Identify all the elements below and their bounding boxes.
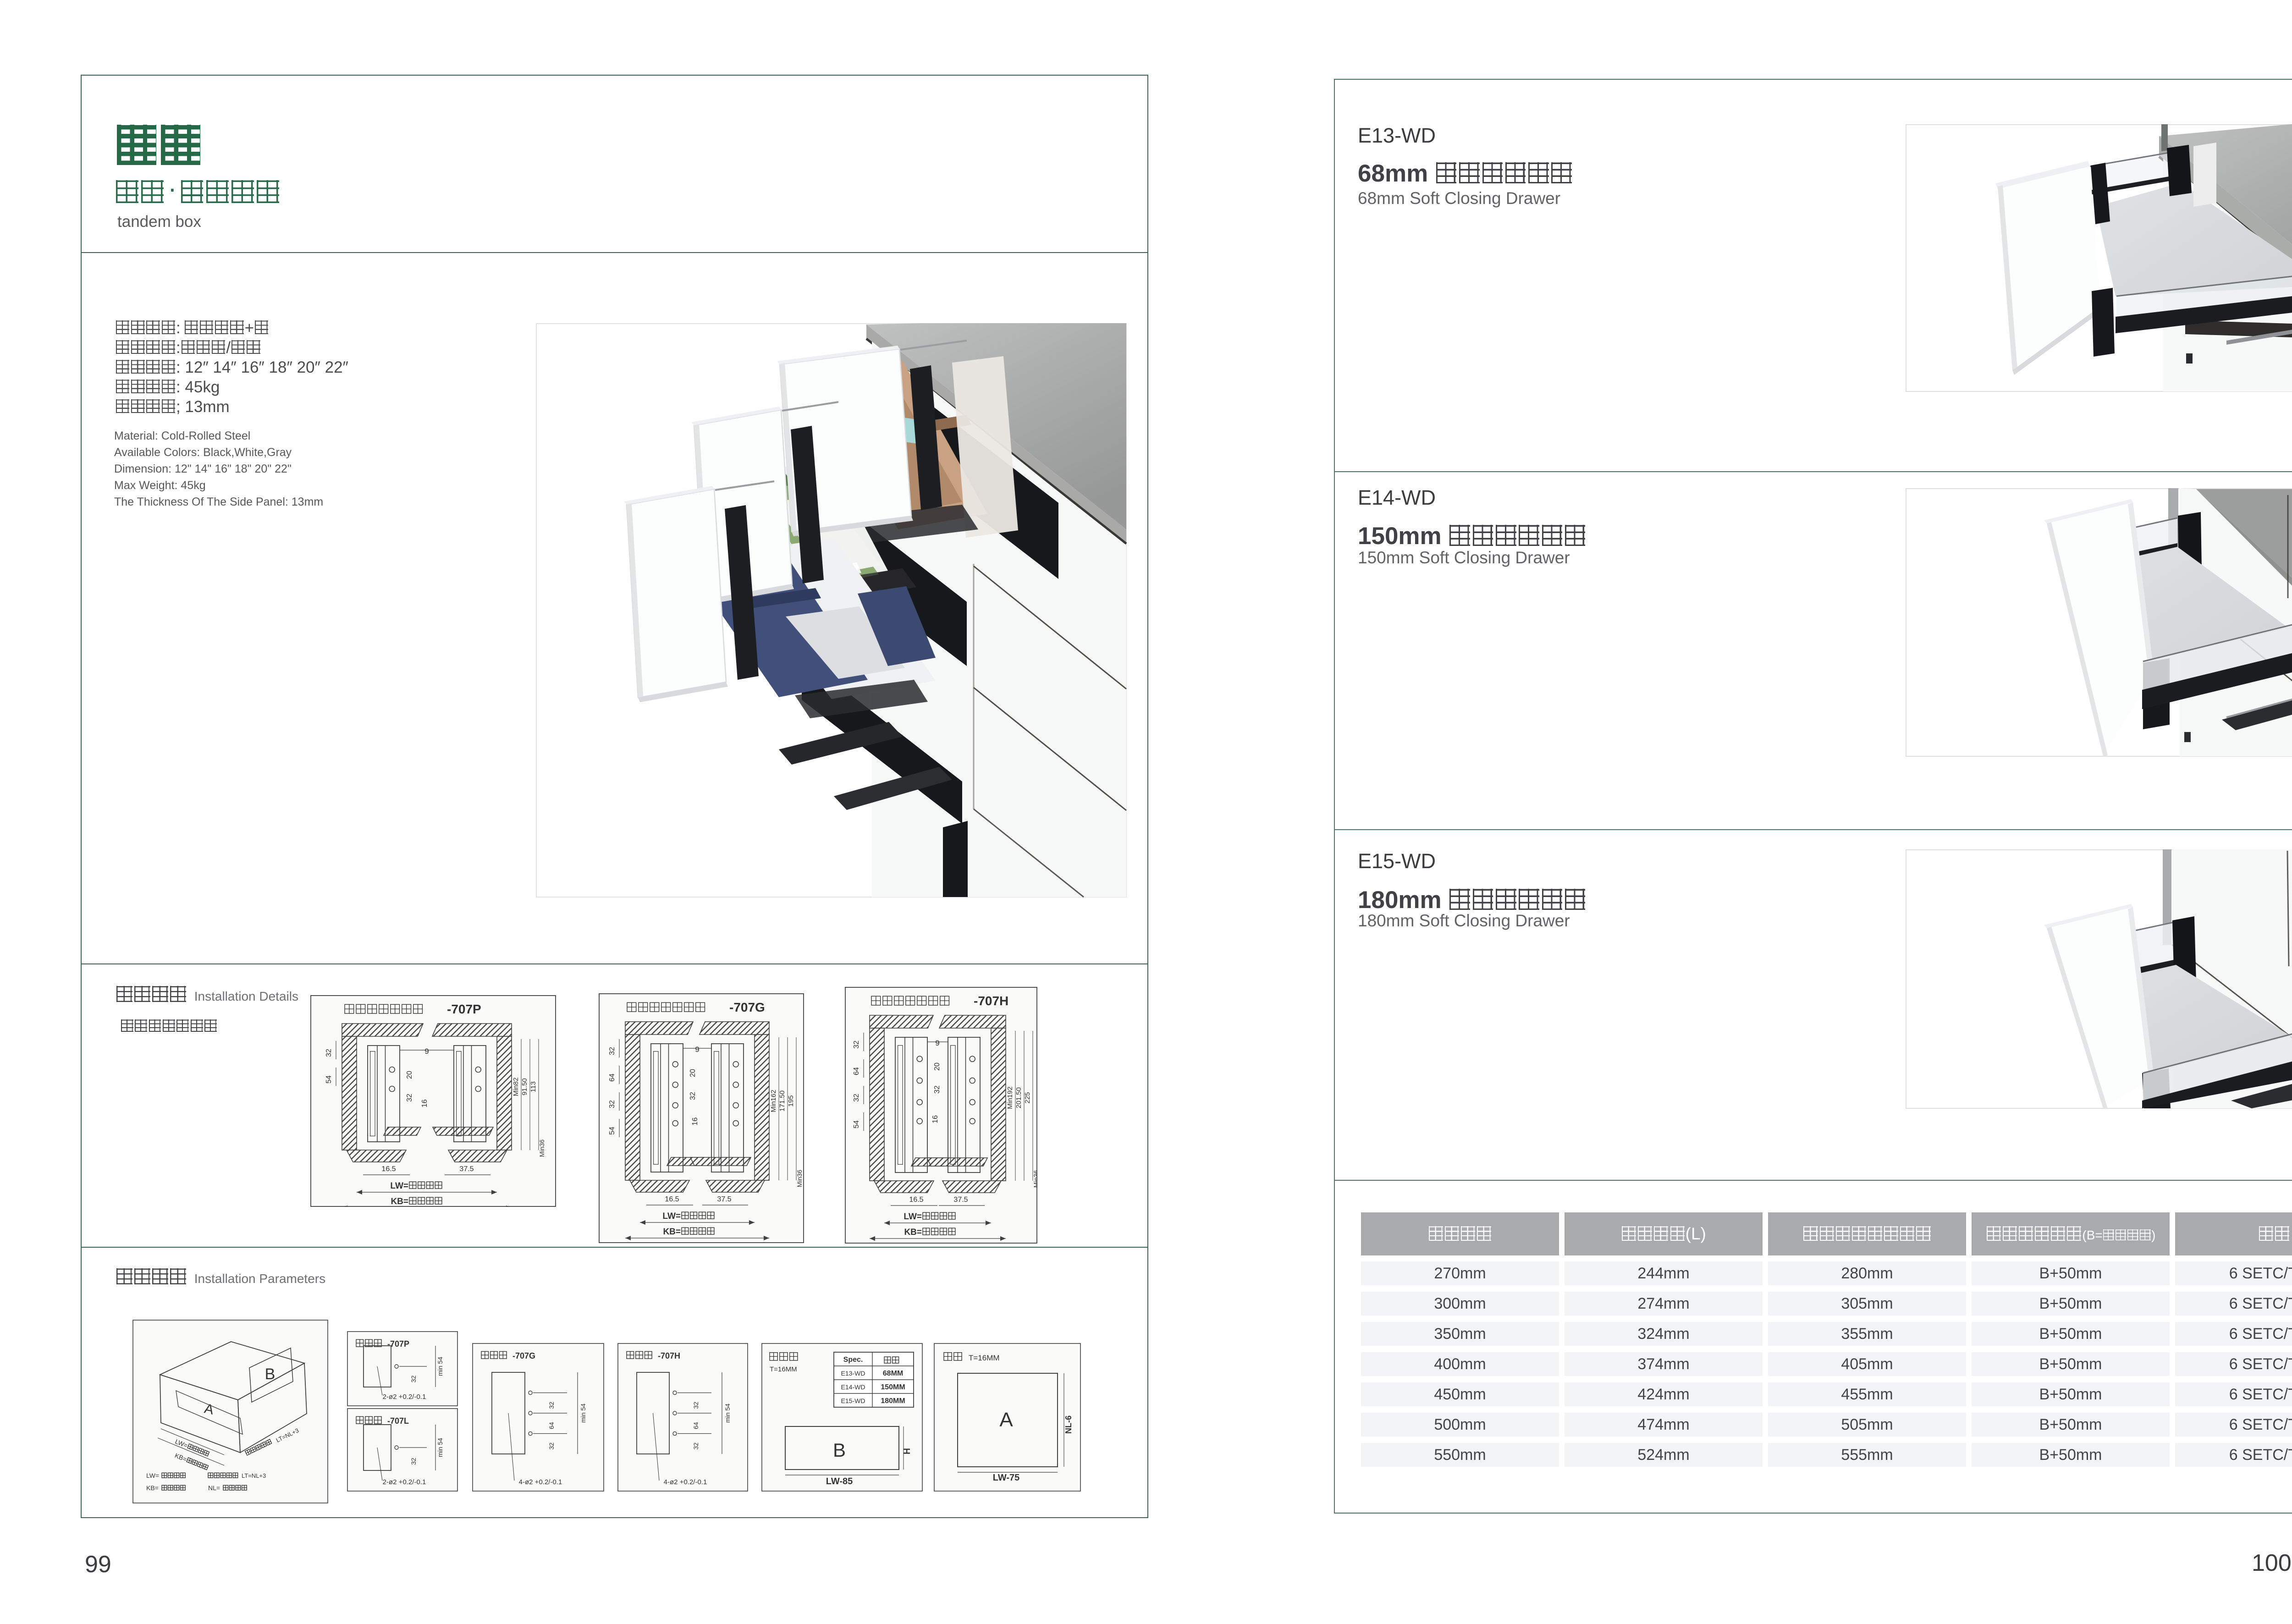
svg-text:-707H: -707H <box>974 994 1008 1008</box>
svg-text:KB=: KB= <box>904 1228 922 1237</box>
svg-text:32: 32 <box>689 1092 697 1100</box>
svg-text:-707G: -707G <box>729 1000 765 1014</box>
svg-text:H: H <box>903 1448 912 1454</box>
svg-text:16.5: 16.5 <box>665 1195 679 1203</box>
svg-text:NL=: NL= <box>208 1484 220 1492</box>
svg-text:16.5: 16.5 <box>909 1196 923 1204</box>
svg-text:20: 20 <box>406 1071 413 1079</box>
svg-text:-707G: -707G <box>512 1351 535 1360</box>
svg-text:2-ø2 +0.2/-0.1: 2-ø2 +0.2/-0.1 <box>383 1478 426 1486</box>
svg-text:-707H: -707H <box>658 1351 680 1360</box>
svg-text:20: 20 <box>689 1069 697 1077</box>
svg-text:9: 9 <box>695 1045 699 1054</box>
svg-text:113: 113 <box>529 1081 537 1092</box>
svg-text:Min162: Min162 <box>770 1090 777 1112</box>
svg-text:37.5: 37.5 <box>717 1195 731 1203</box>
svg-text:LW=: LW= <box>904 1212 922 1222</box>
svg-text:64: 64 <box>692 1422 700 1429</box>
svg-text:16: 16 <box>931 1115 939 1123</box>
svg-text:Min36: Min36 <box>538 1140 545 1157</box>
svg-text:NL-6: NL-6 <box>1064 1415 1073 1434</box>
svg-text:KB=: KB= <box>663 1227 681 1237</box>
svg-text:min 54: min 54 <box>436 1357 444 1376</box>
svg-text:37.5: 37.5 <box>459 1165 474 1173</box>
svg-text:B: B <box>265 1365 275 1383</box>
svg-text:16: 16 <box>421 1099 429 1107</box>
svg-text:16: 16 <box>691 1118 699 1126</box>
svg-text:A: A <box>999 1409 1013 1431</box>
svg-text:E14-WD: E14-WD <box>841 1383 865 1391</box>
svg-text:32: 32 <box>325 1049 333 1057</box>
svg-text:Min192: Min192 <box>1006 1086 1014 1109</box>
svg-text:-707L: -707L <box>387 1416 409 1426</box>
svg-text:180MM: 180MM <box>881 1397 905 1405</box>
svg-text:2-ø2 +0.2/-0.1: 2-ø2 +0.2/-0.1 <box>383 1393 426 1401</box>
svg-text:64: 64 <box>608 1073 616 1082</box>
svg-text:225: 225 <box>1024 1092 1031 1103</box>
svg-text:LW-75: LW-75 <box>993 1473 1020 1483</box>
svg-text:32: 32 <box>608 1047 616 1055</box>
svg-text:32: 32 <box>853 1094 860 1102</box>
svg-text:LW=: LW= <box>662 1211 681 1221</box>
svg-text:91.50: 91.50 <box>521 1078 529 1096</box>
svg-text:37.5: 37.5 <box>953 1196 968 1204</box>
svg-text:201.50: 201.50 <box>1015 1087 1023 1108</box>
svg-text:Spec.: Spec. <box>843 1356 863 1364</box>
svg-text:32: 32 <box>548 1402 555 1409</box>
svg-text:32: 32 <box>406 1094 413 1102</box>
svg-text:4-ø2 +0.2/-0.1: 4-ø2 +0.2/-0.1 <box>664 1478 707 1486</box>
svg-text:LW=: LW= <box>146 1472 159 1479</box>
svg-text:Min36: Min36 <box>1032 1170 1037 1188</box>
svg-text:4-ø2 +0.2/-0.1: 4-ø2 +0.2/-0.1 <box>519 1478 562 1486</box>
svg-text:min 54: min 54 <box>579 1404 587 1423</box>
svg-text:54: 54 <box>853 1120 860 1129</box>
svg-text:68MM: 68MM <box>883 1370 903 1377</box>
svg-text:32: 32 <box>933 1085 941 1094</box>
svg-text:KB=: KB= <box>146 1484 159 1492</box>
svg-text:T=16MM: T=16MM <box>969 1354 1000 1362</box>
svg-text:195: 195 <box>787 1095 795 1107</box>
svg-text:E15-WD: E15-WD <box>841 1397 865 1404</box>
svg-text:32: 32 <box>692 1442 700 1450</box>
svg-text:min 54: min 54 <box>436 1438 444 1457</box>
svg-text:T=16MM: T=16MM <box>770 1365 797 1373</box>
svg-text:LW=: LW= <box>390 1181 408 1191</box>
svg-text:16.5: 16.5 <box>381 1165 396 1173</box>
svg-text:54: 54 <box>325 1075 333 1084</box>
svg-text:min 54: min 54 <box>724 1404 731 1423</box>
svg-text:Min82: Min82 <box>512 1078 520 1096</box>
svg-text:LT=NL+3: LT=NL+3 <box>242 1472 266 1479</box>
svg-text:9: 9 <box>424 1047 429 1056</box>
svg-text:32: 32 <box>548 1442 555 1450</box>
svg-text:Min36: Min36 <box>796 1170 803 1187</box>
svg-text:B: B <box>833 1439 846 1461</box>
svg-text:-707P: -707P <box>447 1002 481 1016</box>
svg-text:171.50: 171.50 <box>778 1090 786 1112</box>
svg-text:64: 64 <box>853 1067 860 1075</box>
svg-text:64: 64 <box>548 1422 555 1429</box>
svg-text:LW-85: LW-85 <box>826 1476 853 1486</box>
svg-text:20: 20 <box>933 1062 941 1071</box>
svg-text:32: 32 <box>608 1100 616 1108</box>
svg-text:9: 9 <box>935 1039 939 1047</box>
svg-text:150MM: 150MM <box>881 1383 905 1391</box>
svg-text:KB=: KB= <box>391 1197 408 1206</box>
svg-text:32: 32 <box>410 1376 417 1383</box>
svg-text:32: 32 <box>853 1040 860 1049</box>
svg-text:54: 54 <box>608 1127 616 1135</box>
svg-text:E13-WD: E13-WD <box>841 1370 865 1377</box>
svg-text:32: 32 <box>692 1402 700 1409</box>
svg-text:32: 32 <box>410 1458 417 1465</box>
